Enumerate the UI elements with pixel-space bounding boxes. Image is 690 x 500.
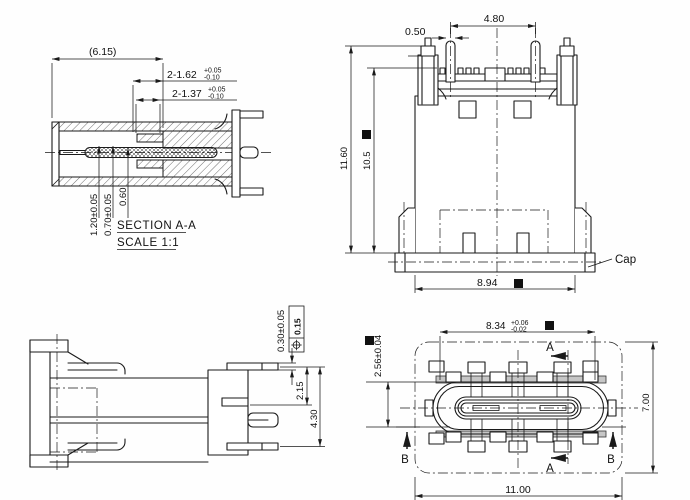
dim-label: 4.30 — [309, 410, 320, 429]
dim-label: 2.15 — [295, 382, 306, 401]
flange — [30, 340, 50, 467]
section-mark-b: B — [607, 454, 615, 466]
cap-label: Cap — [615, 254, 636, 266]
dim-section-overall: (6.15) — [52, 46, 163, 128]
left-leg — [399, 208, 415, 253]
dim-label: 0.70±0.05 — [103, 194, 114, 236]
dim-label: 1.20±0.05 — [89, 194, 100, 236]
dim-front-body-width: 8.94 — [415, 275, 575, 293]
bottom-lead — [240, 188, 263, 195]
dim-tol-upper: +0.05 — [208, 87, 226, 94]
dim-top-width: 11.00 — [415, 477, 622, 500]
top-lead — [240, 111, 263, 118]
dim-label: 11.60 — [339, 147, 350, 170]
rear-bracket — [232, 110, 240, 197]
section-body-outline — [45, 110, 272, 197]
dim-label: 0.60 — [118, 188, 129, 207]
front-body — [388, 28, 602, 276]
dim-tol-lower: -0.10 — [204, 75, 220, 82]
dim-label: 11.00 — [505, 484, 531, 496]
cap-strip — [395, 253, 595, 272]
section-aa-view: (6.15) 2-1.62 +0.05 -0.10 2-1.37 +0.05 -… — [45, 46, 272, 250]
dim-tol-lower: -0.10 — [208, 94, 224, 101]
dim-top-depth: 7.00 — [625, 342, 658, 473]
dim-label: 2-1.37 — [172, 88, 202, 100]
dim-front-pitch: 4.80 — [451, 13, 536, 34]
critical-dim-marker — [514, 279, 523, 288]
right-leg — [575, 208, 591, 253]
dim-label: 0.50 — [405, 26, 426, 38]
dim-label: 10.5 — [362, 152, 373, 171]
dim-lead-height: 2.15 — [250, 367, 312, 405]
front-view: 4.80 0.50 11.60 10.5 8.94 — [339, 13, 636, 293]
dim-tol-lower: -0.02 — [511, 327, 527, 334]
right-post — [549, 38, 577, 105]
center-post — [240, 147, 258, 158]
gdt-frame: 0.15 — [289, 306, 304, 352]
gdt-value: 0.15 — [293, 318, 303, 335]
drawing-sheet: (6.15) 2-1.62 +0.05 -0.10 2-1.37 +0.05 -… — [0, 0, 690, 500]
position-tolerance-icon — [291, 340, 301, 350]
critical-dim-marker — [365, 336, 374, 345]
dim-tol-upper: +0.05 — [204, 68, 222, 75]
dim-label: 2.56±0.04 — [373, 335, 384, 377]
dim-side-overall: 4.30 — [280, 367, 325, 447]
section-scale: SCALE 1:1 — [117, 237, 179, 249]
critical-dim-marker — [545, 321, 554, 330]
side-body — [30, 334, 278, 473]
section-title: SECTION A-A — [117, 220, 196, 232]
top-body — [400, 342, 638, 473]
head-block — [208, 370, 248, 455]
dim-front-pin-width: 0.50 — [405, 26, 469, 38]
dim-label: 2-1.62 — [167, 69, 197, 81]
top-view: 8.34 +0.06 -0.02 2.56±0.04 7.00 11.00 — [365, 320, 658, 500]
dim-label: 8.94 — [477, 277, 498, 289]
dim-label: 0.30±0.05 — [276, 310, 287, 352]
bottom-lead — [227, 443, 278, 450]
dim-label: 4.80 — [484, 13, 505, 25]
technical-drawing-usb-connector: (6.15) 2-1.62 +0.05 -0.10 2-1.37 +0.05 -… — [0, 0, 690, 500]
dim-label: 7.00 — [641, 394, 652, 413]
dim-label: (6.15) — [89, 46, 116, 58]
section-mark-b: B — [401, 454, 409, 466]
section-mark-a: A — [546, 463, 554, 475]
section-title-block: SECTION A-A SCALE 1:1 — [117, 220, 196, 250]
top-lead — [227, 363, 278, 370]
dim-label: 8.34 — [486, 321, 506, 332]
side-view: 0.30±0.05 0.15 2.15 4.30 — [30, 306, 325, 473]
critical-dim-marker — [362, 130, 371, 139]
section-mark-a: A — [546, 342, 554, 354]
